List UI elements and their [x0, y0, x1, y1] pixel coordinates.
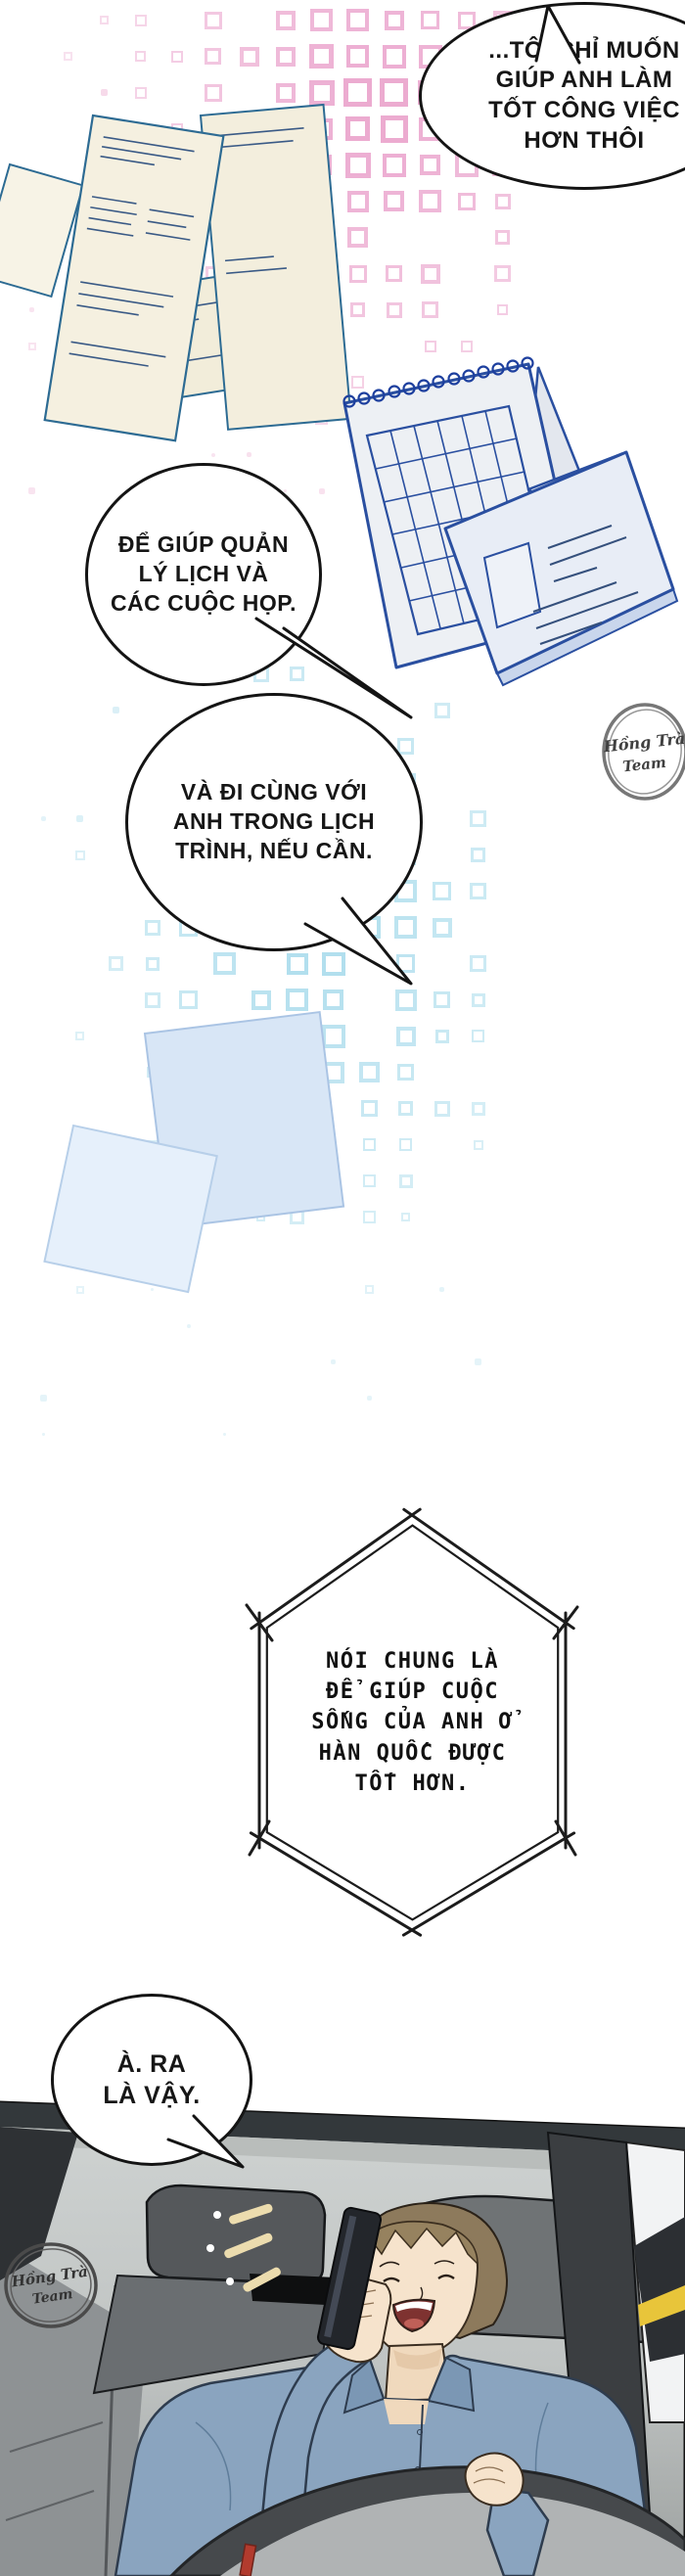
- pattern-square: [458, 193, 476, 210]
- pattern-square: [276, 228, 295, 247]
- pattern-square: [472, 993, 485, 1007]
- pattern-square: [384, 191, 404, 211]
- pattern-square: [76, 1286, 84, 1294]
- pattern-square: [472, 1102, 485, 1116]
- pattern-square: [213, 952, 236, 975]
- pattern-square: [76, 815, 83, 822]
- pattern-square: [286, 989, 308, 1011]
- pattern-square: [323, 989, 343, 1010]
- pattern-square: [363, 1138, 376, 1151]
- speech-bubble-schedule: ĐỂ GIÚP QUẢN LÝ LỊCH VÀ CÁC CUỘC HỌP.: [85, 463, 322, 686]
- bubble-line: CÁC CUỘC HỌP.: [111, 589, 297, 619]
- pattern-square: [207, 341, 219, 352]
- hex-line: TỐT HƠN.: [355, 1769, 471, 1799]
- pattern-square: [205, 48, 221, 65]
- pattern-square: [475, 1358, 481, 1365]
- pattern-square: [439, 1287, 444, 1292]
- pattern-square: [470, 883, 486, 899]
- pattern-square: [171, 123, 183, 135]
- pattern-square: [171, 51, 183, 63]
- bubble-line: LÝ LỊCH VÀ: [139, 560, 269, 589]
- pattern-square: [251, 990, 271, 1010]
- pattern-square: [435, 1030, 449, 1043]
- hex-line: HÀN QUỐC ĐƯỢC: [319, 1738, 507, 1769]
- pattern-square: [363, 1174, 376, 1187]
- pattern-square: [361, 1100, 378, 1117]
- pattern-square: [347, 227, 368, 248]
- pattern-square: [290, 1210, 304, 1224]
- pattern-square: [327, 1174, 341, 1188]
- bubble-line: LÀ VẬY.: [103, 2080, 200, 2112]
- pattern-square: [148, 1213, 157, 1221]
- bubble-line: TRÌNH, NẾU CẦN.: [175, 837, 373, 866]
- pattern-square: [67, 308, 69, 311]
- pattern-square: [323, 1062, 344, 1083]
- pattern-square: [319, 488, 325, 494]
- pattern-square: [471, 848, 485, 862]
- pattern-square: [434, 703, 450, 718]
- pattern-square: [314, 302, 329, 317]
- bubble-line: ...TÔI CHỈ MUỐN: [488, 36, 680, 67]
- pattern-square: [397, 738, 414, 755]
- pattern-square: [206, 303, 219, 316]
- pattern-square: [287, 1062, 307, 1082]
- pattern-square: [215, 1063, 234, 1081]
- pattern-square: [148, 1140, 158, 1150]
- pattern-square: [399, 1138, 412, 1151]
- pattern-square: [284, 489, 287, 492]
- pattern-square: [169, 230, 184, 245]
- comic-page: Hồng Trà Team ...TÔI CHỈ MUỐN GIÚP ANH L…: [0, 0, 685, 2576]
- pattern-square: [135, 15, 147, 26]
- pattern-square: [275, 118, 297, 140]
- pattern-square: [461, 341, 473, 352]
- pattern-square: [66, 380, 70, 385]
- pattern-square: [322, 952, 345, 976]
- pattern-square: [419, 190, 441, 212]
- pattern-square: [287, 953, 308, 975]
- pattern-square: [399, 1174, 413, 1188]
- pattern-square: [381, 115, 408, 143]
- pattern-square: [433, 882, 451, 900]
- pattern-square: [394, 916, 417, 939]
- bubble-line: TỐT CÔNG VIỆC: [488, 96, 680, 126]
- pattern-square: [385, 11, 404, 30]
- pattern-square: [211, 453, 215, 457]
- pattern-square: [346, 45, 369, 68]
- pattern-square: [309, 44, 334, 69]
- pattern-square: [397, 1064, 414, 1081]
- pattern-square: [169, 158, 185, 173]
- pattern-square: [425, 341, 436, 352]
- pattern-square: [28, 487, 35, 494]
- pattern-square: [100, 16, 109, 24]
- pattern-square: [289, 1136, 305, 1153]
- pattern-square: [256, 1213, 265, 1221]
- bubble-line: VÀ ĐI CÙNG VỚI: [181, 778, 367, 807]
- pattern-square: [380, 78, 408, 107]
- pattern-square: [383, 45, 406, 69]
- hex-line: SỐNG CỦA ANH Ở: [311, 1707, 513, 1737]
- pattern-square: [367, 1396, 372, 1401]
- pattern-square: [386, 265, 402, 282]
- pattern-square: [395, 989, 417, 1011]
- bubble-line: HƠN THÔI: [524, 126, 644, 157]
- pattern-square: [147, 1067, 158, 1078]
- pattern-square: [421, 11, 439, 29]
- pattern-square: [396, 954, 415, 973]
- pattern-square: [42, 1433, 45, 1436]
- pattern-square: [389, 450, 399, 460]
- pattern-square: [470, 810, 486, 827]
- pattern-square: [290, 667, 304, 681]
- pattern-square: [309, 80, 335, 106]
- pattern-square: [247, 452, 251, 457]
- pattern-square: [205, 12, 222, 29]
- pattern-square: [187, 1324, 191, 1328]
- bubble-line: À. RA: [117, 2048, 187, 2081]
- bubble-line: GIÚP ANH LÀM: [496, 66, 673, 96]
- background-square-pattern: [0, 0, 685, 2576]
- pattern-square: [223, 1433, 226, 1436]
- pattern-square: [275, 155, 296, 175]
- pattern-square: [497, 304, 508, 315]
- pattern-square: [474, 1140, 483, 1150]
- pattern-square: [240, 47, 259, 67]
- pattern-square: [472, 1030, 484, 1042]
- pattern-square: [470, 955, 486, 972]
- pattern-square: [172, 378, 182, 388]
- pattern-square: [40, 1395, 47, 1402]
- pattern-square: [345, 153, 371, 178]
- pattern-square: [65, 343, 72, 350]
- pattern-square: [461, 413, 473, 425]
- pattern-square: [350, 302, 365, 317]
- pattern-square: [240, 192, 258, 210]
- pattern-square: [215, 1027, 235, 1046]
- pattern-square: [136, 342, 145, 350]
- pattern-square: [251, 1026, 271, 1046]
- pattern-square: [311, 191, 332, 211]
- pattern-square: [422, 301, 438, 318]
- pattern-square: [420, 155, 440, 175]
- pattern-square: [290, 1101, 304, 1116]
- pattern-square: [75, 851, 85, 860]
- pattern-square: [276, 11, 296, 30]
- speech-bubble-accompany: VÀ ĐI CÙNG VỚI ANH TRONG LỊCH TRÌNH, NẾU…: [125, 693, 423, 951]
- pattern-square: [434, 991, 450, 1008]
- pattern-square: [343, 78, 372, 107]
- hex-line: NÓI CHUNG LÀ: [326, 1646, 499, 1677]
- pattern-square: [276, 83, 296, 103]
- pattern-square: [275, 191, 296, 211]
- pattern-square: [276, 47, 296, 67]
- hexagon-bubble-text: NÓI CHUNG LÀ ĐỂ GIÚP CUỘC SỐNG CỦA ANH Ở…: [259, 1605, 566, 1840]
- pattern-square: [495, 194, 511, 209]
- pattern-square: [351, 376, 364, 389]
- pattern-square: [29, 307, 34, 312]
- pattern-square: [331, 1359, 336, 1364]
- pattern-square: [434, 1101, 450, 1117]
- pattern-square: [28, 343, 36, 350]
- pattern-square: [433, 918, 452, 938]
- pattern-square: [383, 154, 406, 177]
- bubble-line: ĐỂ GIÚP QUẢN: [118, 530, 289, 560]
- pattern-square: [436, 632, 448, 644]
- pattern-square: [145, 992, 160, 1008]
- pattern-square: [205, 266, 221, 282]
- pattern-square: [75, 1032, 84, 1040]
- pattern-square: [135, 87, 147, 99]
- pattern-square: [179, 990, 198, 1009]
- pattern-square: [359, 1062, 380, 1082]
- pattern-square: [495, 230, 510, 245]
- pattern-square: [146, 957, 160, 971]
- pattern-square: [205, 84, 222, 102]
- pattern-square: [396, 1027, 416, 1046]
- pattern-square: [170, 195, 183, 207]
- pattern-square: [41, 816, 46, 821]
- pattern-square: [349, 265, 367, 283]
- pattern-square: [76, 1214, 84, 1221]
- pattern-square: [312, 264, 332, 284]
- pattern-square: [286, 1025, 308, 1047]
- pattern-square: [401, 1213, 410, 1221]
- pattern-square: [101, 89, 108, 96]
- pattern-square: [347, 191, 369, 212]
- pattern-square: [278, 302, 293, 317]
- pattern-square: [322, 1025, 345, 1048]
- pattern-square: [112, 1176, 120, 1185]
- pattern-square: [355, 452, 361, 458]
- pattern-square: [151, 1288, 154, 1291]
- pattern-square: [173, 343, 181, 350]
- hex-line: ĐỂ GIÚP CUỘC: [326, 1677, 499, 1707]
- pattern-square: [185, 1214, 193, 1221]
- pattern-square: [421, 264, 440, 284]
- pattern-square: [363, 1211, 376, 1223]
- pattern-square: [145, 920, 160, 936]
- pattern-square: [365, 1285, 374, 1294]
- pattern-square: [398, 1101, 413, 1116]
- pattern-square: [346, 9, 369, 31]
- pattern-square: [64, 52, 72, 61]
- pattern-square: [345, 116, 370, 141]
- pattern-square: [113, 707, 119, 713]
- pattern-square: [494, 265, 511, 282]
- pattern-square: [311, 155, 332, 175]
- pattern-square: [109, 956, 123, 971]
- pattern-square: [315, 412, 328, 425]
- bubble-line: ANH TRONG LỊCH: [173, 807, 375, 837]
- pattern-square: [135, 51, 146, 62]
- pattern-square: [311, 118, 333, 140]
- pattern-square: [310, 9, 333, 31]
- pattern-square: [387, 302, 402, 318]
- speech-bubble-reply: À. RA LÀ VẬY.: [51, 1994, 252, 2166]
